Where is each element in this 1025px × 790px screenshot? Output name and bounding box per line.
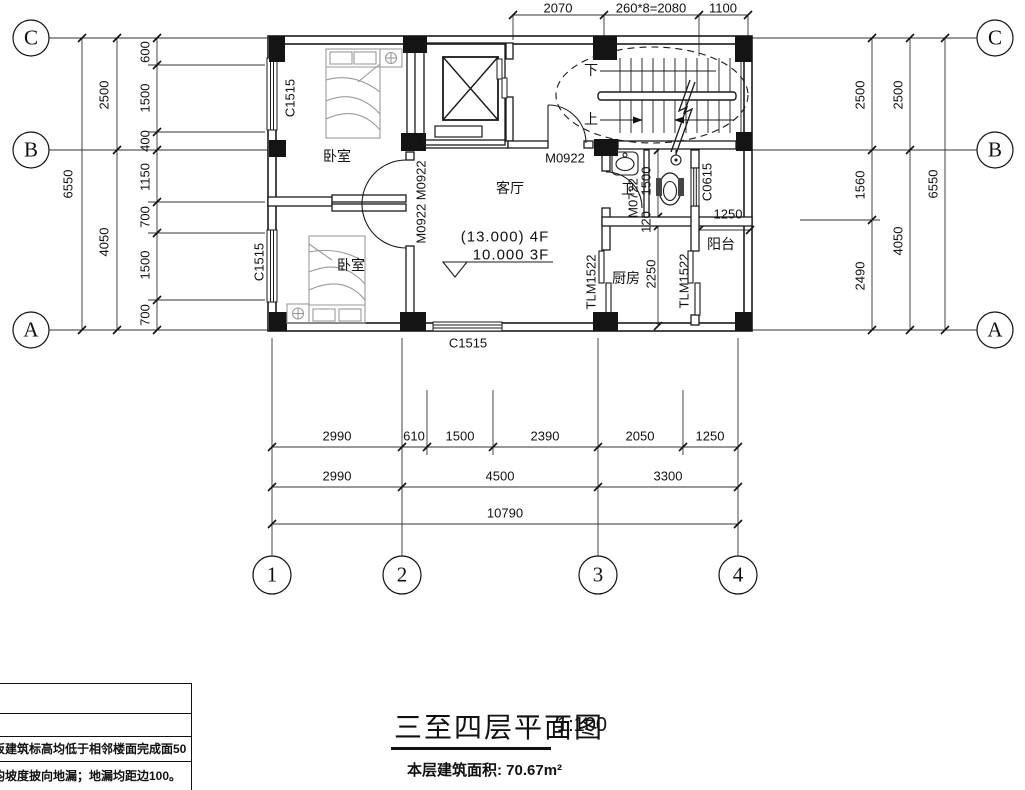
dim-label: 3300 [654,469,683,484]
grid-bubble-left-c: C [24,26,38,51]
grid-bubble-left-a: A [23,318,38,343]
elevator [424,43,507,145]
floor-plan-canvas: C B A C B A 1 2 3 4 2070 260*8=2080 1100… [0,0,1025,790]
dim-label: 4050 [97,228,112,257]
room-label-balcony: 阳台 [707,234,735,254]
dim-label: 2500 [853,81,868,110]
dim-label: 700 [138,206,153,228]
dim-label: 1500 [138,251,153,280]
table-rule [0,761,191,762]
note-row: 均坡度披向地漏；地漏均距边100。 [0,767,181,784]
room-label-bedroom: 卧室 [323,146,351,166]
dim-label: 1560 [853,171,868,200]
dim-label: 6550 [61,170,76,199]
bed-bottom [287,236,365,323]
dim-label: 2490 [853,262,868,291]
title-underline [391,747,551,750]
dim-label: 2390 [531,429,560,444]
door-tag: TLM1522 [677,254,692,309]
dim-label: 2500 [891,81,906,110]
level-annotation-3f: 10.000 3F [473,247,550,264]
grid-bubble-3: 3 [593,563,604,588]
window-tag: C1515 [283,79,298,117]
floor-area-note: 本层建筑面积: 70.67m² [407,759,562,780]
door-tag: M0722 [626,178,641,218]
window-tag: C1515 [449,336,487,351]
dim-label: 1500 [446,429,475,444]
drawing-scale: 1:100 [557,714,607,737]
dim-label: 610 [403,429,425,444]
dim-label: 4500 [486,469,515,484]
grid-bubble-right-c: C [988,26,1002,51]
grid-bubble-1: 1 [267,563,278,588]
grid-bubble-right-a: A [987,318,1002,343]
note-row: 板建筑标高均低于相邻楼面完成面50 [0,740,186,757]
dim-label: 10790 [487,506,523,521]
dim-label: 700 [138,304,153,326]
grid-bubble-2: 2 [397,563,408,588]
window-tag: C0615 [700,163,715,201]
dim-label: 1500 [138,84,153,113]
door-tag: TLM1522 [584,255,599,310]
dimension-ticks [78,11,949,528]
dim-label: 260*8=2080 [616,1,687,16]
dim-label: 2990 [323,429,352,444]
dim-label: 400 [138,130,153,152]
dim-label: 1250 [714,207,743,222]
dim-label: 4050 [891,227,906,256]
room-label-bedroom: 卧室 [337,255,365,275]
dim-label: 600 [138,41,153,63]
dim-label: 2070 [544,1,573,16]
table-rule [0,736,191,737]
dim-label: 1150 [138,163,153,191]
dim-label: 2250 [644,260,659,289]
door-tag: M0922 M0922 [414,160,429,243]
bed-top [326,49,402,138]
plan-linework [0,0,1025,790]
notes-table: 板建筑标高均低于相邻楼面完成面50 均坡度披向地漏；地漏均距边100。 [0,683,192,790]
window-tag: C1515 [252,243,267,281]
table-rule [0,713,191,714]
door-arcs [362,105,642,248]
dim-label: 2050 [626,429,655,444]
level-symbol [443,262,553,277]
room-label-kitchen: 厨房 [612,268,640,288]
stair-up-label: 上 [584,109,598,129]
room-label-living: 客厅 [496,178,524,198]
door-tag: M0922 [545,151,585,166]
dim-label: 2990 [323,469,352,484]
grid-bubble-4: 4 [733,563,744,588]
dim-label: 6550 [926,170,941,199]
dim-label: 1500 [639,167,654,196]
level-annotation-4f: (13.000) 4F [461,229,550,246]
grid-bubble-right-b: B [988,138,1002,163]
stair-down-label: 下 [584,60,598,80]
dim-label: 1100 [709,1,737,16]
dim-label: 120 [639,211,654,233]
dim-label: 1250 [696,429,725,444]
dim-label: 2500 [97,81,112,110]
grid-bubble-left-b: B [24,138,38,163]
